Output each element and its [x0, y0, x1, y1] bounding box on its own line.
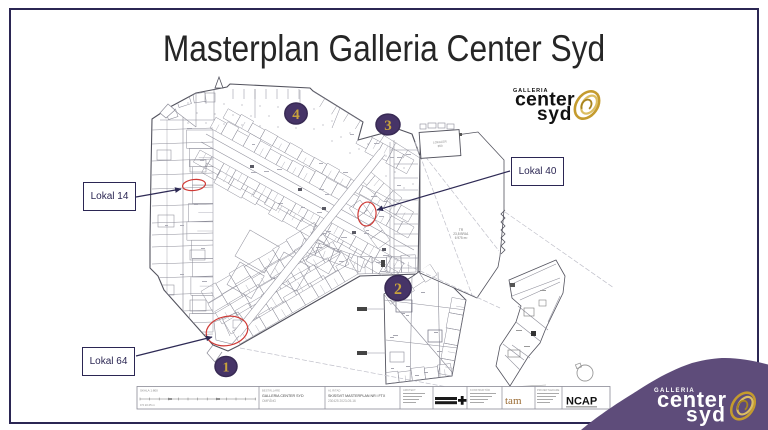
svg-text:BESTÄLLARE: BESTÄLLARE: [262, 389, 280, 393]
svg-text:syd: syd: [686, 404, 726, 427]
svg-text:syd: syd: [537, 104, 572, 125]
svg-text:0 5 10 25 m: 0 5 10 25 m: [140, 403, 155, 407]
svg-text:230425 2023-05-16: 230425 2023-05-16: [328, 399, 356, 403]
svg-text:OMFÅNG: OMFÅNG: [262, 398, 277, 403]
svg-text:1: 1: [223, 361, 230, 376]
svg-text:A1 RITAD: A1 RITAD: [328, 389, 340, 393]
svg-text:PROJEKTLEDARE: PROJEKTLEDARE: [537, 388, 560, 392]
svg-text:ARKITEKT: ARKITEKT: [403, 388, 416, 392]
svg-text:KONSTRUKTÖR: KONSTRUKTÖR: [470, 388, 490, 392]
svg-text:4: 4: [292, 107, 300, 123]
svg-text:6 975 m²: 6 975 m²: [455, 236, 468, 240]
svg-text:SKALA 1:800: SKALA 1:800: [140, 389, 158, 393]
svg-text:3: 3: [384, 118, 392, 134]
svg-text:SKISSVIT MASTERPLAN NR i FTX: SKISSVIT MASTERPLAN NR i FTX: [328, 394, 386, 398]
svg-text:tam: tam: [505, 395, 522, 407]
svg-text:2: 2: [394, 281, 402, 298]
svg-text:NCAP: NCAP: [566, 396, 597, 408]
svg-text:850: 850: [437, 144, 443, 148]
svg-text:GALLERIA CENTER SYD: GALLERIA CENTER SYD: [262, 394, 304, 398]
